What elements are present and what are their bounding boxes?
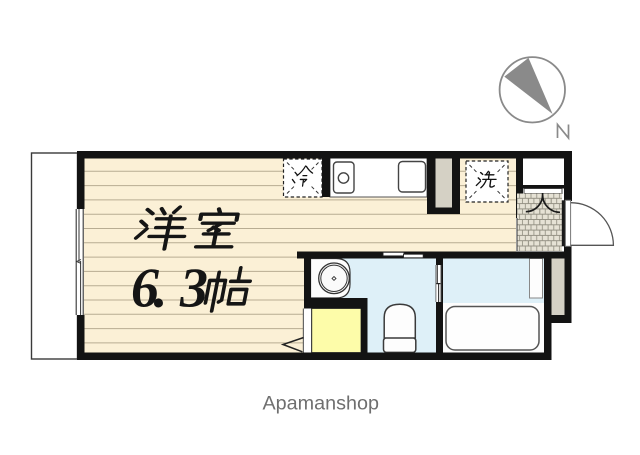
svg-text:.: . bbox=[154, 258, 168, 320]
svg-text:Apamanshop: Apamanshop bbox=[263, 393, 380, 415]
svg-text:3: 3 bbox=[179, 258, 208, 320]
